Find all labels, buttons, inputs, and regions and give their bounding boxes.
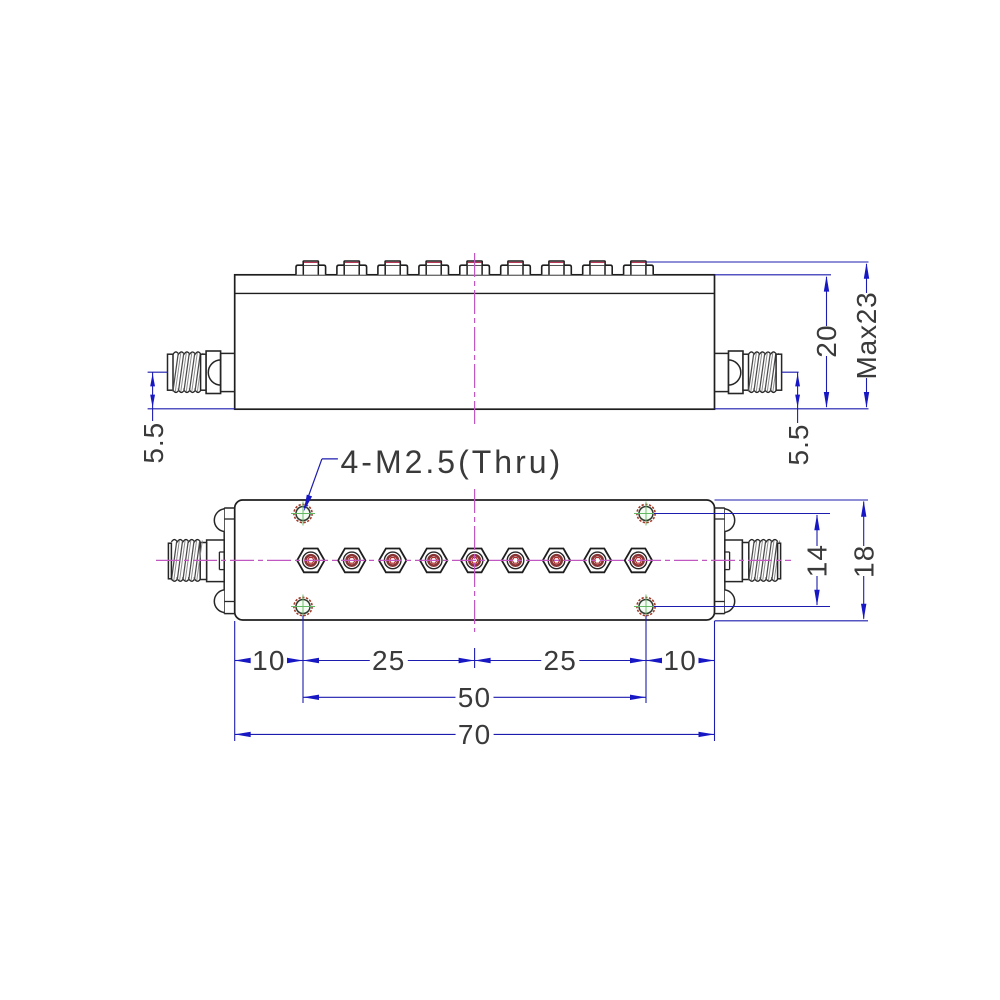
- svg-text:10: 10: [252, 645, 286, 676]
- svg-text:50: 50: [458, 682, 492, 713]
- svg-text:4-M2.5(Thru): 4-M2.5(Thru): [341, 444, 564, 480]
- svg-text:14: 14: [802, 544, 833, 578]
- svg-text:25: 25: [544, 645, 578, 676]
- svg-text:10: 10: [663, 645, 697, 676]
- svg-text:25: 25: [372, 645, 406, 676]
- svg-text:5.5: 5.5: [138, 422, 169, 464]
- svg-text:18: 18: [848, 544, 879, 578]
- svg-text:5.5: 5.5: [783, 424, 814, 466]
- svg-text:70: 70: [458, 719, 492, 750]
- svg-text:Max23: Max23: [851, 291, 882, 379]
- svg-text:20: 20: [811, 324, 842, 358]
